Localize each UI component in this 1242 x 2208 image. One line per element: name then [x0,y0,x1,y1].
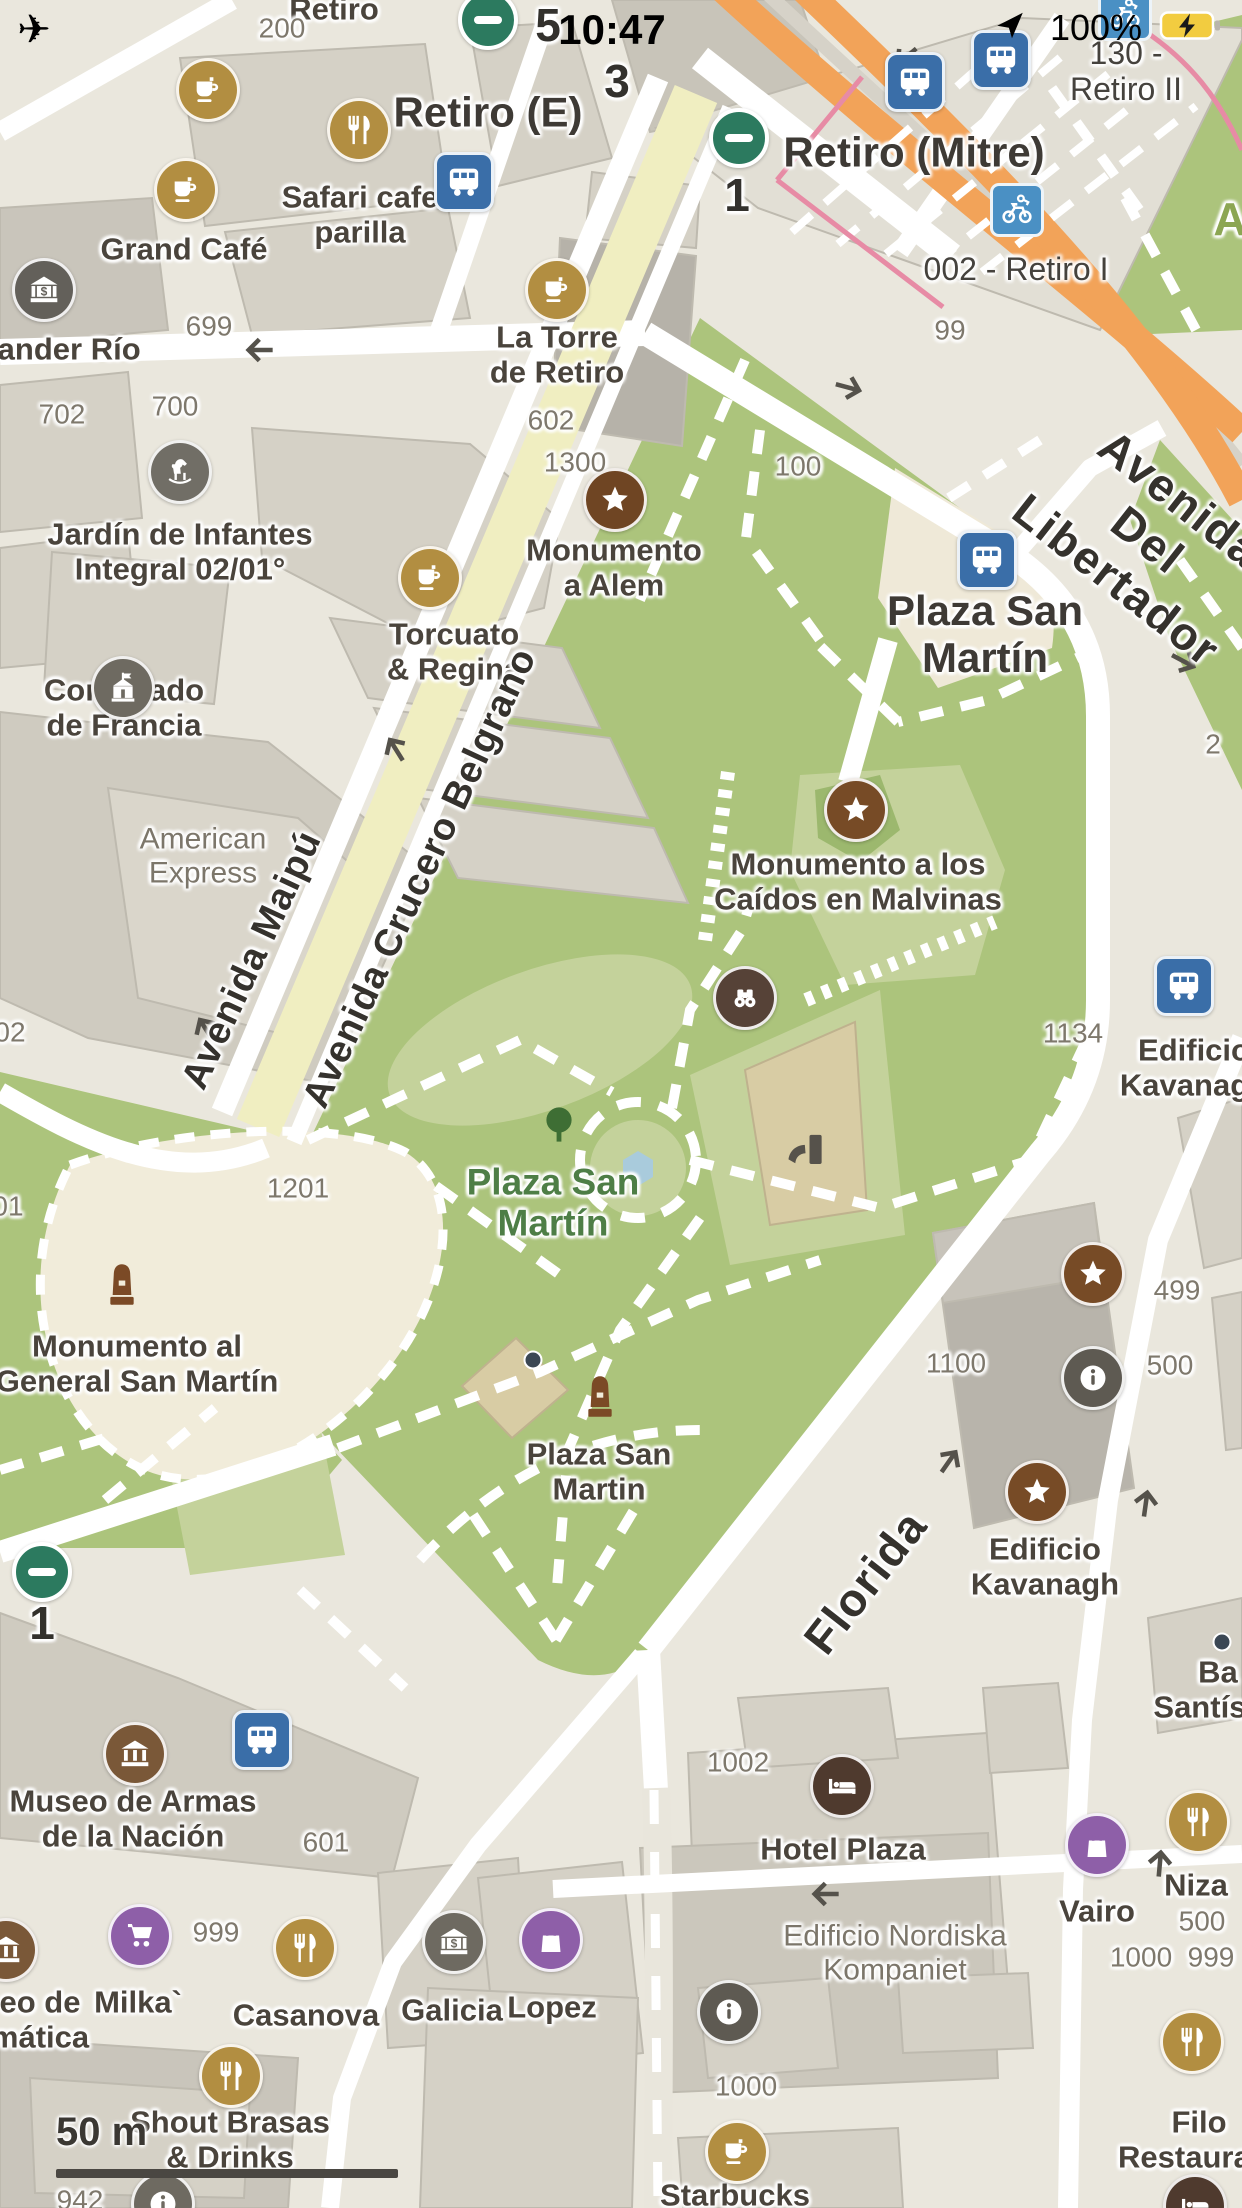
cafe-icon [191,73,225,107]
monument-marker-kavanagh[interactable] [1005,1460,1069,1524]
oneway-arrow-icon [1123,1479,1168,1524]
restaurant-icon [288,1931,322,1965]
star-icon [598,483,632,517]
svg-text:$: $ [451,1936,458,1950]
info-icon [146,2187,180,2208]
bank-marker-galicia[interactable]: $ [422,1910,486,1974]
info-icon [712,1995,746,2029]
binoculars-icon [728,981,762,1015]
bus-stop-east[interactable] [1154,956,1214,1016]
monument-marker-east[interactable] [1061,1242,1125,1306]
cart-icon [123,1919,157,1953]
kindergarten-marker-horse[interactable] [148,440,212,504]
info-marker-south[interactable] [697,1980,761,2044]
restaurant-marker-safari[interactable] [327,98,391,162]
map-canvas [0,0,1242,2208]
monument-marker-malvinas[interactable] [824,778,888,842]
small-dot-road[interactable] [1213,1633,1232,1652]
oneway-arrow-icon [1138,1840,1181,1883]
monument-icon [94,1260,150,1316]
bus-stop-safari[interactable] [434,152,494,212]
playground-slide-icon[interactable] [778,1122,834,1178]
subway-entrance-sw[interactable] [12,1542,72,1602]
restaurant-marker-casanova[interactable] [273,1916,337,1980]
bus-stop-plaza-san-martin[interactable] [957,530,1017,590]
battery-percent: 100% [1050,7,1142,49]
star-icon [1020,1475,1054,1509]
monument-marker-alem[interactable] [583,468,647,532]
info-icon [1076,1361,1110,1395]
bike-rental-retiro-i[interactable] [990,183,1044,237]
museum-icon [118,1737,152,1771]
tree-icon[interactable] [535,1102,583,1150]
bus-icon [967,540,1007,580]
tree-icon [535,1102,583,1150]
bag-icon [534,1923,568,1957]
status-time: 10:47 [558,6,665,54]
bus-icon [444,162,484,202]
restaurant-marker-filo[interactable] [1160,2010,1224,2074]
obelisk-marker-general-san-martin[interactable] [94,1260,150,1316]
cafe-marker-top[interactable] [176,58,240,122]
status-bar: ✈ 10:47 100% [0,0,1242,58]
cafe-icon [720,2135,754,2169]
bus-icon [895,62,935,102]
small-dot-building[interactable] [524,1351,543,1370]
restaurant-icon [214,2059,248,2093]
bank-marker-santander[interactable]: $ [12,258,76,322]
oneway-arrow-icon [804,1874,844,1914]
horse-icon [163,455,197,489]
museum-icon [0,1933,23,1967]
shop-marker-lopez[interactable] [519,1908,583,1972]
bank-icon: $ [27,273,61,307]
svg-text:$: $ [41,284,48,298]
oneway-arrow-icon [238,330,278,370]
supermarket-marker-milka[interactable] [108,1904,172,1968]
bank-icon: $ [437,1925,471,1959]
consulate-icon [106,671,140,705]
restaurant-icon [342,113,376,147]
bag-icon [1080,1828,1114,1862]
restaurant-icon [1175,2025,1209,2059]
shop-marker-vairo[interactable] [1065,1813,1129,1877]
airplane-icon: ✈ [17,7,51,53]
subway-bar-icon [725,134,753,142]
cafe-marker-torcuato[interactable] [398,546,462,610]
map-screen[interactable]: ✈ 10:47 100% Retiro20053Retiro (E)Retiro… [0,0,1242,2208]
monument-icon [572,1372,628,1428]
subway-bar-icon [28,1568,56,1576]
bike-icon [999,192,1035,228]
cafe-marker-la-torre[interactable] [525,258,589,322]
viewpoint-marker-binoculars[interactable] [713,966,777,1030]
embassy-marker-consulado[interactable] [91,656,155,720]
hotel-marker-plaza[interactable] [810,1754,874,1818]
battery-charging-icon [1159,10,1221,47]
bus-icon [1164,966,1204,1006]
restaurant-marker-shout[interactable] [199,2044,263,2108]
star-icon [1076,1257,1110,1291]
location-arrow-icon [993,9,1027,48]
cafe-marker-starbucks[interactable] [705,2120,769,2184]
slide-icon [778,1122,834,1178]
cafe-icon [540,273,574,307]
bus-icon [242,1720,282,1760]
cafe-marker-grand-cafe[interactable] [154,158,218,222]
bus-stop-museo[interactable] [232,1710,292,1770]
subway-entrance-mitre[interactable] [709,108,769,168]
cafe-icon [413,561,447,595]
restaurant-marker-niza[interactable] [1166,1790,1230,1854]
info-marker-east[interactable] [1061,1346,1125,1410]
cafe-icon [169,173,203,207]
bed-icon [1178,2189,1212,2208]
bed-icon [825,1769,859,1803]
obelisk-marker-plaza-san-martin[interactable] [572,1372,628,1428]
restaurant-icon [1181,1805,1215,1839]
bus-stop-mitre[interactable] [885,52,945,112]
museum-marker-armas[interactable] [103,1722,167,1786]
star-icon [839,793,873,827]
